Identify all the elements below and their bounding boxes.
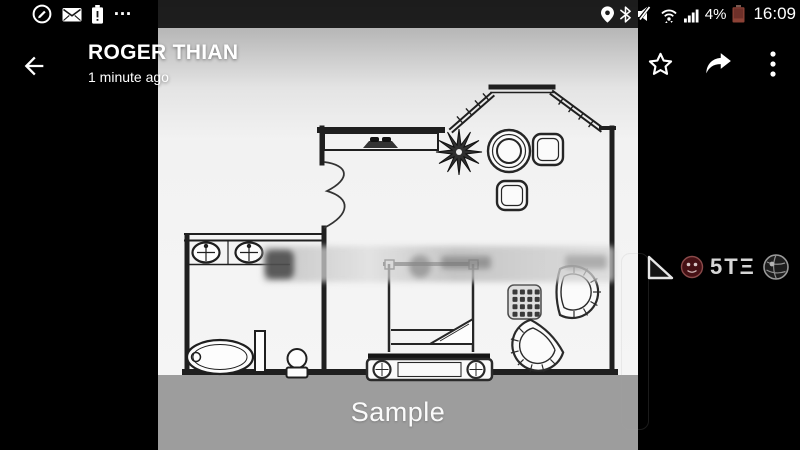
android-screen: Sample …: [0, 0, 800, 450]
notification-icons: …: [32, 4, 133, 24]
battery-percent: 4%: [705, 6, 727, 23]
more-notifications-indicator: …: [113, 5, 133, 15]
back-arrow-icon: [20, 52, 48, 80]
double-door: [324, 162, 345, 228]
signal-strength-icon: [684, 6, 699, 23]
bluetooth-icon: [620, 6, 631, 23]
location-icon: [601, 6, 614, 23]
stool: [533, 134, 563, 165]
overflow-menu-button[interactable]: [758, 48, 788, 80]
wifi-icon: [660, 6, 678, 23]
photo-header: ROGER THIAN 1 minute ago: [0, 28, 800, 100]
battery-alert-icon: [92, 5, 103, 24]
system-status-icons: 4% 16:09: [601, 4, 796, 24]
edit-note-icon: [32, 4, 52, 24]
red-badge-icon: [680, 254, 704, 280]
more-options-icon: [769, 50, 777, 78]
watermark-text: 5TΞ: [710, 254, 756, 280]
stool: [497, 181, 527, 210]
sample-watermark-text: Sample: [158, 375, 638, 450]
channel-watermark: 5TΞ: [646, 252, 790, 282]
blurred-watermark-strip: [263, 246, 615, 282]
mantel-object: [363, 137, 398, 148]
sender-name: ROGER THIAN: [88, 40, 238, 65]
battery-icon: [732, 5, 745, 23]
status-bar[interactable]: …: [0, 0, 800, 28]
clock: 16:09: [753, 4, 796, 24]
share-button[interactable]: [703, 48, 733, 80]
triangle-icon: [646, 254, 674, 281]
favorite-button[interactable]: [645, 48, 675, 80]
timestamp: 1 minute ago: [88, 69, 238, 85]
title-block: ROGER THIAN 1 minute ago: [88, 40, 238, 85]
star-icon: [647, 51, 674, 78]
toilet: [287, 349, 308, 378]
bathtub: [187, 340, 253, 374]
blanket-fold: [430, 319, 473, 344]
email-icon: [62, 6, 82, 23]
mute-icon: [637, 6, 654, 22]
grid-ottoman: [508, 285, 541, 319]
round-table: [488, 130, 530, 172]
sphere-icon: [762, 252, 790, 282]
back-button[interactable]: [18, 50, 50, 82]
sample-label: Sample: [351, 397, 446, 428]
share-icon: [705, 52, 732, 76]
partition-wall: [255, 331, 265, 372]
